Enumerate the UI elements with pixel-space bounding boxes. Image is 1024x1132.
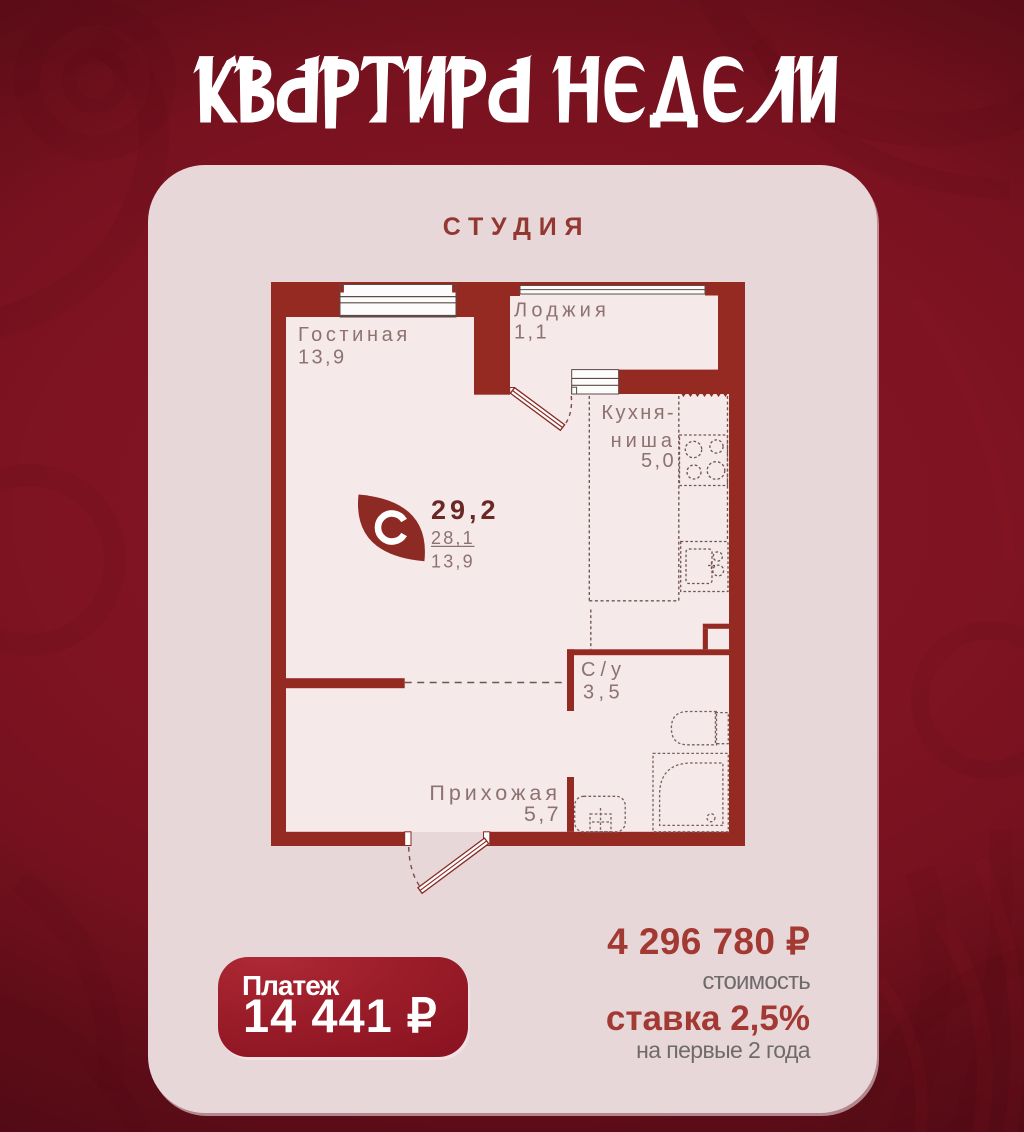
svg-text:Гостиная: Гостиная	[298, 324, 411, 346]
svg-text:С/у: С/у	[581, 659, 626, 681]
svg-text:29,2: 29,2	[431, 495, 500, 525]
svg-text:28,1: 28,1	[431, 528, 475, 548]
svg-text:ниша: ниша	[611, 430, 676, 452]
svg-text:Лоджия: Лоджия	[514, 300, 610, 322]
svg-text:3,5: 3,5	[583, 682, 624, 704]
svg-text:13,9: 13,9	[298, 347, 347, 369]
svg-text:5,0: 5,0	[641, 450, 676, 472]
svg-text:13,9: 13,9	[431, 552, 475, 572]
svg-text:5,7: 5,7	[524, 802, 561, 826]
svg-text:Кухня-: Кухня-	[601, 402, 676, 424]
svg-text:1,1: 1,1	[514, 322, 549, 344]
